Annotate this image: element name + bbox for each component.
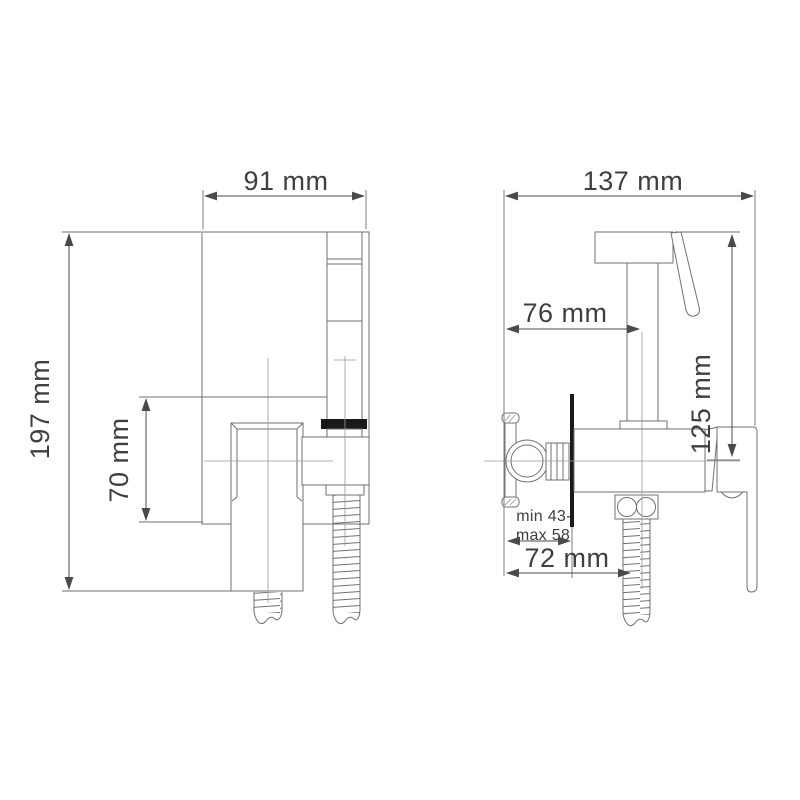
dim-spout-offset: 76 mm (507, 298, 639, 329)
threaded-connector (546, 443, 569, 480)
front-view: 91 mm 197 mm 70 mm (25, 166, 369, 624)
dim-wall-thickness-line1: min 43- (516, 508, 571, 525)
shower-hose-front (333, 495, 360, 624)
hose-coupling-nuts (615, 495, 658, 519)
dim-spout-height-label: 125 mm (686, 354, 716, 455)
dim-hose-offset-label: 72 mm (524, 543, 609, 573)
dim-front-height-label: 197 mm (25, 359, 55, 460)
riser-flange (620, 421, 667, 429)
side-view: 137 mm 76 mm 125 mm min 43- max 58 72 mm (484, 166, 757, 626)
valve-escutcheon (231, 423, 303, 591)
dim-spout-offset-label: 76 mm (522, 298, 607, 328)
riser-tube (627, 263, 658, 421)
retaining-ring (321, 419, 367, 429)
shower-hose-side (623, 519, 650, 626)
spray-head (595, 232, 673, 263)
dim-hose-offset: 72 mm (507, 543, 630, 573)
dim-front-width: 91 mm (203, 166, 366, 229)
technical-drawing: 91 mm 197 mm 70 mm (0, 0, 800, 800)
dim-side-depth-label: 137 mm (583, 166, 684, 196)
spray-wand (327, 232, 362, 420)
dim-front-height: 197 mm (25, 232, 231, 591)
dim-front-width-label: 91 mm (243, 166, 328, 196)
trigger-lever (671, 232, 699, 316)
wand-neck (327, 429, 362, 437)
dim-valve-height-label: 70 mm (104, 417, 134, 502)
